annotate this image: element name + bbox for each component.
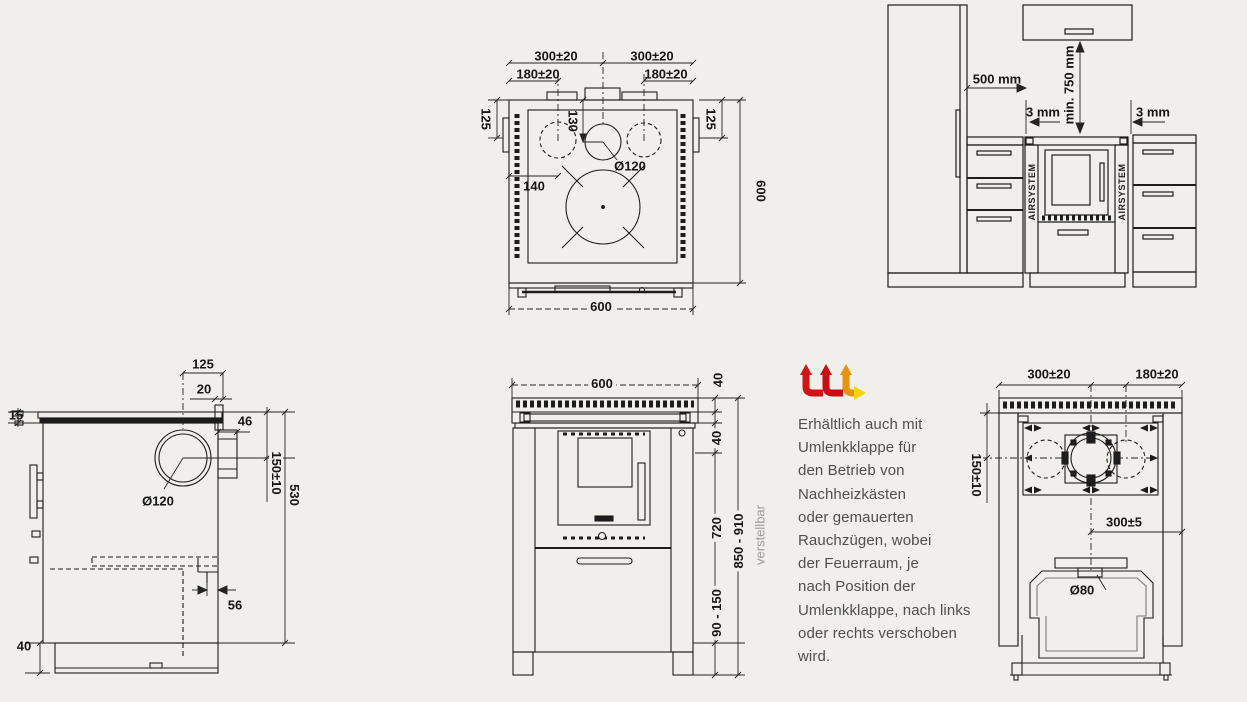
dim-label-90-150: 90 - 150 [710,586,724,640]
dim-label-500mm: 500 mm [973,72,1021,87]
dim-label-600-width: 600 [587,300,615,314]
info-text-line: Umlenkklappe für [798,436,976,459]
dim-label-180-right: 180±20 [644,67,687,82]
dim-label-600-front: 600 [588,377,616,391]
stove-in-row [1025,137,1128,287]
top-view-drawing: 300±20 300±20 180±20 180±20 125 125 130 … [480,30,775,322]
rear-view-drawing: 300±20 180±20 150±10 300±5 Ø80 [960,360,1247,702]
dim-label-300-right: 300±20 [630,49,673,64]
dim-label-140: 140 [523,179,545,194]
dim-label-dia120: Ø120 [614,159,646,174]
airsystem-label-right: AIRSYSTEM [1117,163,1127,220]
dim-label-180-rear: 180±20 [1135,367,1178,382]
dim-label-530: 530 [287,481,301,509]
info-text-line: nach Position der [798,575,976,598]
dim-label-300-rear: 300±20 [1027,367,1070,382]
info-text-line: Nachheizkästen [798,483,976,506]
info-text-block: Erhältlich auch mit Umlenkklappe für den… [798,413,976,668]
info-text-line: oder rechts verschoben [798,622,976,645]
logo-block [798,361,868,401]
arrow-up-1 [800,364,812,375]
arrow-right-yellow [854,386,866,400]
dim-label-125: 125 [192,357,214,372]
side-view-lineart [0,355,310,702]
info-text-line: Rauchzügen, wobei [798,529,976,552]
dim-label-125-right: 125 [704,108,719,130]
kitchen-cabinets [888,5,1196,287]
info-text-line: den Betrieb von [798,459,976,482]
dim-label-dia120-side: Ø120 [142,494,174,509]
dim-label-56: 56 [228,598,242,613]
installation-view-drawing: 500 mm 3 mm min. 750 mm 3 mm AIRSYSTEM A… [880,0,1247,300]
dim-label-130: 130 [566,110,581,132]
dim-label-40-top: 40 [711,373,726,387]
dim-label-300-left: 300±20 [534,49,577,64]
dim-label-300-5: 300±5 [1106,515,1142,530]
dim-label-3mm-left: 3 mm [1026,105,1060,120]
dim-label-46: 46 [238,414,252,429]
airsystem-label-left: AIRSYSTEM [1027,163,1037,220]
side-view-body [13,405,237,673]
info-text-line: wird. [798,645,976,668]
dim-label-20: 20 [197,382,211,397]
dim-label-125-left: 125 [479,108,494,130]
dim-label-40-side: 40 [17,639,31,654]
info-text-line: Erhältlich auch mit [798,413,976,436]
dim-label-40-mid: 40 [710,428,724,448]
info-text-line: Umlenkklappe, nach links [798,599,976,622]
arrow-up-3 [840,364,852,375]
dim-label-15: 15 [9,408,23,423]
dim-label-720: 720 [710,514,724,542]
dim-label-180-left: 180±20 [516,67,559,82]
rear-view-lineart [960,360,1247,702]
dim-label-dia80: Ø80 [1070,583,1095,598]
rear-view-body [999,398,1182,680]
front-view-body [512,398,698,675]
side-view-drawing: 125 20 15 46 150±10 530 Ø120 56 40 [0,355,310,702]
verstellbar-label: verstellbar [753,505,768,565]
dim-label-850-910: 850 - 910 [732,511,746,572]
info-text-line: der Feuerraum, je [798,552,976,575]
stove-technical-drawing-page: { "canvas": {"bg": "#f0efec", "line_colo… [0,0,1247,702]
dim-label-600-height: 600 [754,180,769,202]
arrow-up-2 [820,364,832,375]
front-view-drawing: 600 40 40 720 850 - 910 90 - 150 verstel… [480,370,790,702]
dim-label-3mm-right: 3 mm [1136,105,1170,120]
dim-label-min-750mm: min. 750 mm [1062,46,1077,125]
airsystem-flow-logo [798,361,868,401]
info-text-line: oder gemauerten [798,506,976,529]
dim-label-150-10: 150±10 [269,448,283,497]
dim-label-150-rear: 150±10 [969,450,983,499]
